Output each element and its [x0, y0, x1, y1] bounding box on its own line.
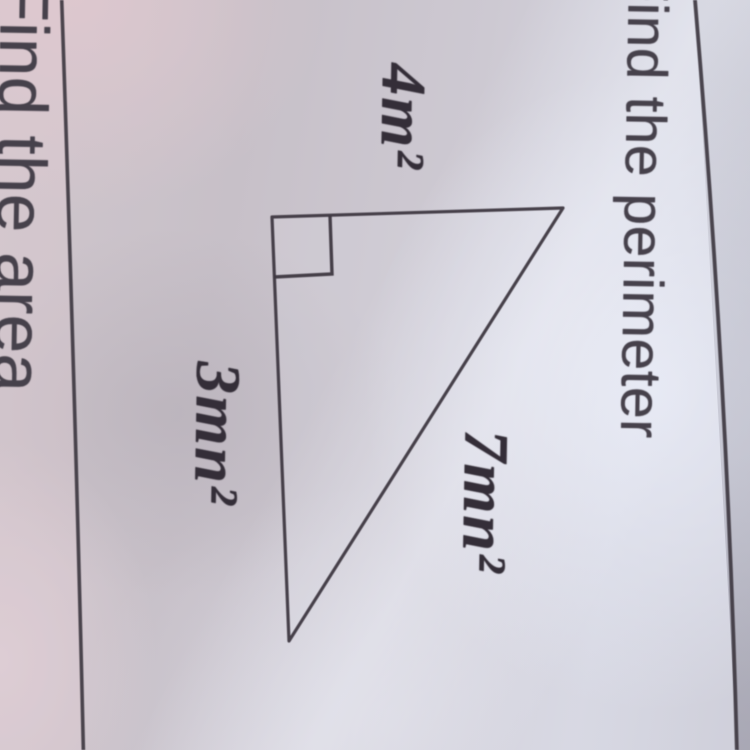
- right-divider-line: [695, 0, 738, 750]
- triangle-side-label-top-leg: 4m²: [365, 63, 441, 171]
- triangle-outline: [272, 208, 563, 641]
- triangle-side-label-hypotenuse: 7mn²: [447, 429, 524, 575]
- problem-title: Find the perimeter: [607, 0, 681, 439]
- adjacent-problem-title: Find the area: [0, 0, 64, 393]
- triangle-side-label-left-leg: 3mn²: [179, 361, 256, 507]
- left-divider-line: [62, 0, 84, 750]
- worksheet-photo: Find the area Find the perimeter 4m² 3mn…: [0, 0, 750, 750]
